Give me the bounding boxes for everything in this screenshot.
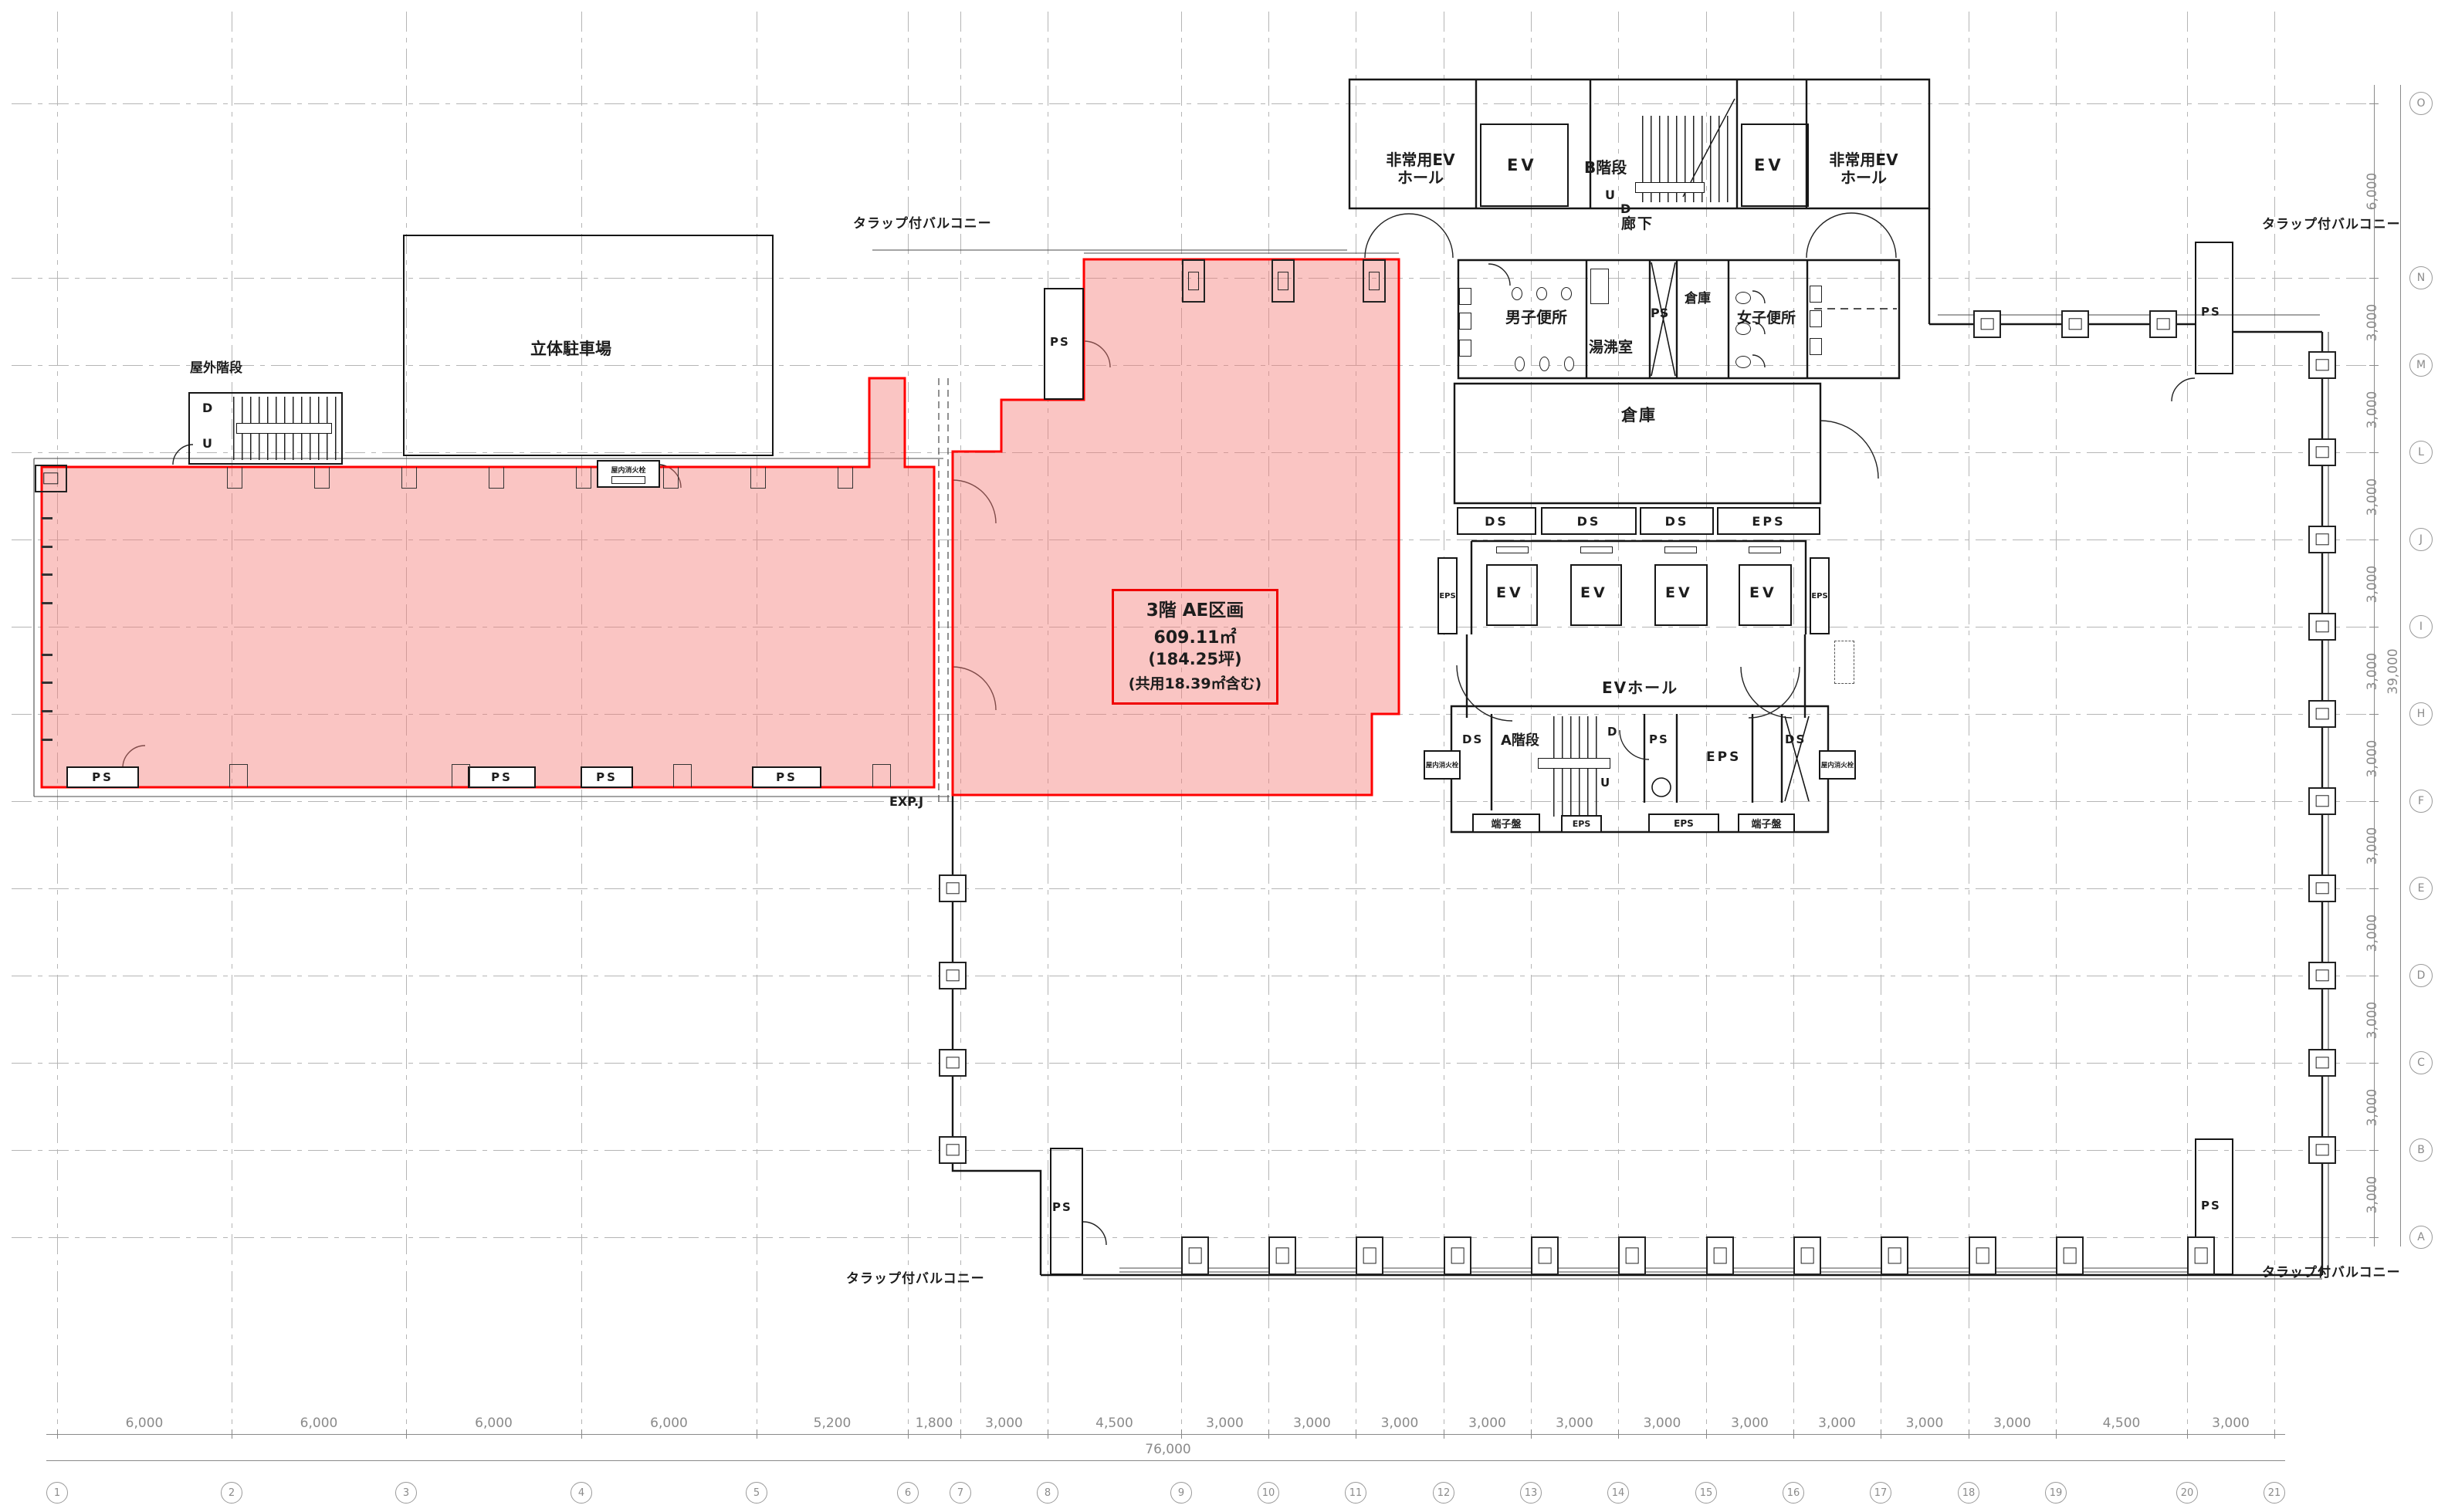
column-box-core	[1363, 1247, 1376, 1263]
right-dim-tick	[2369, 452, 2379, 453]
wall-tick	[673, 764, 692, 787]
wall-tick	[872, 764, 891, 787]
right-dim-value: 3,000	[2365, 900, 2380, 966]
bottom-dim-tick	[1793, 1429, 1794, 1439]
right-dim-tick	[2369, 888, 2379, 889]
grid-column-bubble-21: 21	[2264, 1482, 2285, 1504]
grid-column-bubble-14: 14	[1607, 1482, 1629, 1504]
window-mullion	[42, 573, 52, 576]
right-dim-value: 3,000	[2365, 464, 2380, 530]
bottom-dim-value: 3,000	[1991, 1416, 2034, 1431]
wall-tick	[401, 467, 417, 489]
column-box	[2308, 351, 2336, 379]
dimension-layer: 6,0006,0006,0006,0005,2001,8003,0004,500…	[0, 0, 2438, 1512]
column-box-core	[2316, 1057, 2329, 1068]
column-box-core	[946, 969, 960, 981]
bottom-dim-tick	[1444, 1429, 1444, 1439]
right-dim-value: 3,000	[2365, 289, 2380, 356]
bottom-dim-value: 3,000	[1641, 1416, 1684, 1431]
window-mullion	[42, 546, 52, 548]
bottom-dim-value: 6,000	[648, 1416, 691, 1431]
right-dim-value: 3,000	[2365, 726, 2380, 792]
column-box	[1973, 310, 2001, 338]
window-mullion	[42, 602, 52, 604]
column-box	[2308, 700, 2336, 728]
column-box-core	[1714, 1247, 1727, 1263]
grid-column-bubble-3: 3	[395, 1482, 417, 1504]
column-box	[939, 1136, 967, 1164]
grid-row-bubble-B: B	[2409, 1138, 2433, 1162]
right-dim-value: 3,000	[2365, 638, 2380, 705]
wall-tick	[452, 764, 470, 787]
column-box	[1969, 1236, 1996, 1275]
column-box-parcel	[35, 465, 67, 492]
grid-column-bubble-10: 10	[1258, 1482, 1279, 1504]
column-box-core	[1976, 1247, 1989, 1263]
column-box	[2308, 874, 2336, 902]
bottom-dim-tick	[581, 1429, 582, 1439]
column-box-core	[946, 1144, 960, 1155]
column-box-core	[1278, 272, 1288, 290]
column-box-core	[2069, 318, 2082, 330]
column-box	[2308, 787, 2336, 815]
grid-row-bubble-O: O	[2409, 92, 2433, 115]
grid-column-bubble-18: 18	[1958, 1482, 1979, 1504]
grid-column-bubble-13: 13	[1520, 1482, 1542, 1504]
bottom-dim-tick	[1268, 1429, 1269, 1439]
column-box	[1531, 1236, 1559, 1275]
right-dim-tick	[2369, 714, 2379, 715]
wall-tick	[227, 467, 242, 489]
window-mullion	[42, 517, 52, 519]
column-box	[2308, 962, 2336, 989]
column-box	[939, 874, 967, 902]
window-mullion	[42, 739, 52, 741]
wall-tick	[750, 467, 766, 489]
bottom-dim-tick	[232, 1429, 232, 1439]
grid-column-bubble-12: 12	[1433, 1482, 1454, 1504]
right-dim-tick	[2369, 1063, 2379, 1064]
wall-tick	[663, 467, 679, 489]
column-box-core	[2316, 533, 2329, 545]
bottom-dim-value: 4,500	[2100, 1416, 2143, 1431]
wall-tick	[229, 764, 248, 787]
right-dim-tick	[2369, 540, 2379, 540]
right-dim-value: 3,000	[2365, 1074, 2380, 1141]
right-dim-value: 3,000	[2365, 1162, 2380, 1228]
bottom-dim-value: 4,500	[1093, 1416, 1136, 1431]
column-box-core	[2316, 795, 2329, 807]
bottom-dim-total: 76,000	[1133, 1442, 1203, 1457]
column-box-core	[2064, 1247, 2077, 1263]
right-dim-value: 6,000	[2365, 158, 2380, 225]
grid-column-bubble-19: 19	[2045, 1482, 2067, 1504]
grid-column-bubble-16: 16	[1783, 1482, 1804, 1504]
bottom-dim-tick	[960, 1429, 961, 1439]
bottom-dim-tick	[1531, 1429, 1532, 1439]
bottom-dim-value: 3,000	[1729, 1416, 1772, 1431]
bottom-dim-tick	[2187, 1429, 2188, 1439]
grid-column-bubble-2: 2	[221, 1482, 242, 1504]
window-mullion	[42, 654, 52, 656]
grid-row-bubble-E: E	[2409, 877, 2433, 900]
window-mullion	[42, 710, 52, 712]
bottom-dim-value: 3,000	[1291, 1416, 1334, 1431]
grid-row-bubble-C: C	[2409, 1051, 2433, 1074]
grid-row-bubble-L: L	[2409, 441, 2433, 464]
grid-row-bubble-D: D	[2409, 964, 2433, 987]
bottom-dim-value: 6,000	[123, 1416, 166, 1431]
column-box-core	[2195, 1247, 2208, 1263]
column-box-core	[2316, 621, 2329, 632]
wall-tick	[838, 467, 853, 489]
grid-row-bubble-H: H	[2409, 702, 2433, 726]
column-box	[2149, 310, 2177, 338]
grid-column-bubble-4: 4	[571, 1482, 592, 1504]
column-box-core	[1981, 318, 1994, 330]
column-box-core	[1276, 1247, 1289, 1263]
column-box	[2308, 1049, 2336, 1077]
wall-tick	[576, 467, 591, 489]
column-box	[2061, 310, 2089, 338]
column-box-core	[946, 882, 960, 894]
column-box	[2056, 1236, 2084, 1275]
right-dim-tick	[2369, 1237, 2379, 1238]
bottom-dim-tick	[757, 1429, 757, 1439]
grid-row-bubble-N: N	[2409, 266, 2433, 289]
bottom-dim-value: 6,000	[472, 1416, 516, 1431]
column-box-core	[2316, 1144, 2329, 1155]
grid-column-bubble-7: 7	[950, 1482, 971, 1504]
floor-plan-canvas: 立体駐車場 屋外階段 D U 非常用EVホール 非常用EVホール EV EV B…	[0, 0, 2438, 1512]
grid-column-bubble-9: 9	[1170, 1482, 1192, 1504]
grid-column-bubble-17: 17	[1870, 1482, 1891, 1504]
grid-column-bubble-5: 5	[746, 1482, 767, 1504]
bottom-dim-tick	[57, 1429, 58, 1439]
column-box	[2308, 613, 2336, 641]
bottom-dim-tick	[1706, 1429, 1707, 1439]
bottom-dim-value: 3,000	[1204, 1416, 1247, 1431]
bottom-dim-value: 3,000	[1816, 1416, 1859, 1431]
bottom-dim-tick	[2056, 1429, 2057, 1439]
column-box-core	[1188, 272, 1199, 290]
right-dim-tick	[2369, 627, 2379, 627]
column-box-parcel	[1363, 259, 1386, 303]
window-mullion	[42, 682, 52, 684]
column-box-core	[1801, 1247, 1814, 1263]
column-box-core	[2316, 708, 2329, 719]
column-box	[1793, 1236, 1821, 1275]
grid-row-bubble-A: A	[2409, 1226, 2433, 1249]
bottom-dim-value: 6,000	[297, 1416, 340, 1431]
bottom-dim-line-1	[46, 1434, 2285, 1435]
right-dim-tick	[2369, 1150, 2379, 1151]
right-dim-tick	[2369, 278, 2379, 279]
column-box-core	[1539, 1247, 1552, 1263]
bottom-dim-value: 3,000	[2209, 1416, 2253, 1431]
bottom-dim-tick	[1181, 1429, 1182, 1439]
column-box	[1881, 1236, 1908, 1275]
column-box-core	[2157, 318, 2170, 330]
column-box	[2308, 526, 2336, 553]
column-box-core	[1451, 1247, 1464, 1263]
right-dim-tick	[2369, 103, 2379, 104]
bottom-dim-tick	[1881, 1429, 1881, 1439]
right-dim-total: 39,000	[2386, 634, 2401, 709]
bottom-dim-tick	[1048, 1429, 1048, 1439]
column-box	[2187, 1236, 2215, 1275]
bottom-dim-tick	[2274, 1429, 2275, 1439]
column-box-core	[1626, 1247, 1639, 1263]
column-box	[2308, 438, 2336, 466]
bottom-dim-tick	[1618, 1429, 1619, 1439]
column-box-core	[2316, 359, 2329, 370]
right-dim-tick	[2369, 976, 2379, 976]
column-box-core	[1888, 1247, 1901, 1263]
bottom-dim-value: 3,000	[1466, 1416, 1509, 1431]
grid-column-bubble-15: 15	[1695, 1482, 1717, 1504]
column-box	[1444, 1236, 1471, 1275]
grid-row-bubble-I: I	[2409, 615, 2433, 638]
bottom-dim-value: 3,000	[1903, 1416, 1946, 1431]
column-box	[939, 962, 967, 989]
right-dim-tick	[2369, 801, 2379, 802]
column-box-core	[946, 1057, 960, 1068]
column-box-parcel	[1182, 259, 1205, 303]
column-box	[1356, 1236, 1383, 1275]
right-dim-value: 3,000	[2365, 987, 2380, 1054]
bottom-dim-tick	[1969, 1429, 1969, 1439]
column-box	[1181, 1236, 1209, 1275]
right-dim-value: 3,000	[2365, 377, 2380, 443]
wall-tick	[489, 467, 504, 489]
bottom-dim-tick	[1356, 1429, 1356, 1439]
column-box-core	[2316, 882, 2329, 894]
grid-row-bubble-J: J	[2409, 528, 2433, 551]
column-box-core	[1369, 272, 1380, 290]
right-dim-value: 3,000	[2365, 551, 2380, 617]
grid-column-bubble-1: 1	[46, 1482, 68, 1504]
grid-row-bubble-M: M	[2409, 353, 2433, 377]
column-box-core	[43, 472, 58, 484]
bottom-dim-line-2	[46, 1460, 2285, 1461]
grid-column-bubble-6: 6	[897, 1482, 919, 1504]
right-dim-value: 3,000	[2365, 813, 2380, 879]
grid-column-bubble-8: 8	[1037, 1482, 1058, 1504]
column-box	[2308, 1136, 2336, 1164]
column-box-parcel	[1271, 259, 1295, 303]
grid-column-bubble-20: 20	[2176, 1482, 2198, 1504]
bottom-dim-value: 1,800	[913, 1416, 956, 1431]
column-box	[1706, 1236, 1734, 1275]
bottom-dim-tick	[406, 1429, 407, 1439]
grid-row-bubble-F: F	[2409, 790, 2433, 813]
bottom-dim-value: 5,200	[811, 1416, 854, 1431]
column-box-core	[2316, 446, 2329, 458]
right-dim-tick	[2369, 365, 2379, 366]
column-box-core	[2316, 969, 2329, 981]
bottom-dim-value: 3,000	[983, 1416, 1026, 1431]
wall-tick	[314, 467, 330, 489]
column-box	[1618, 1236, 1646, 1275]
grid-column-bubble-11: 11	[1345, 1482, 1366, 1504]
column-box	[939, 1049, 967, 1077]
bottom-dim-value: 3,000	[1553, 1416, 1597, 1431]
column-box-core	[1189, 1247, 1202, 1263]
column-box	[1268, 1236, 1296, 1275]
bottom-dim-value: 3,000	[1378, 1416, 1421, 1431]
bottom-dim-tick	[908, 1429, 909, 1439]
